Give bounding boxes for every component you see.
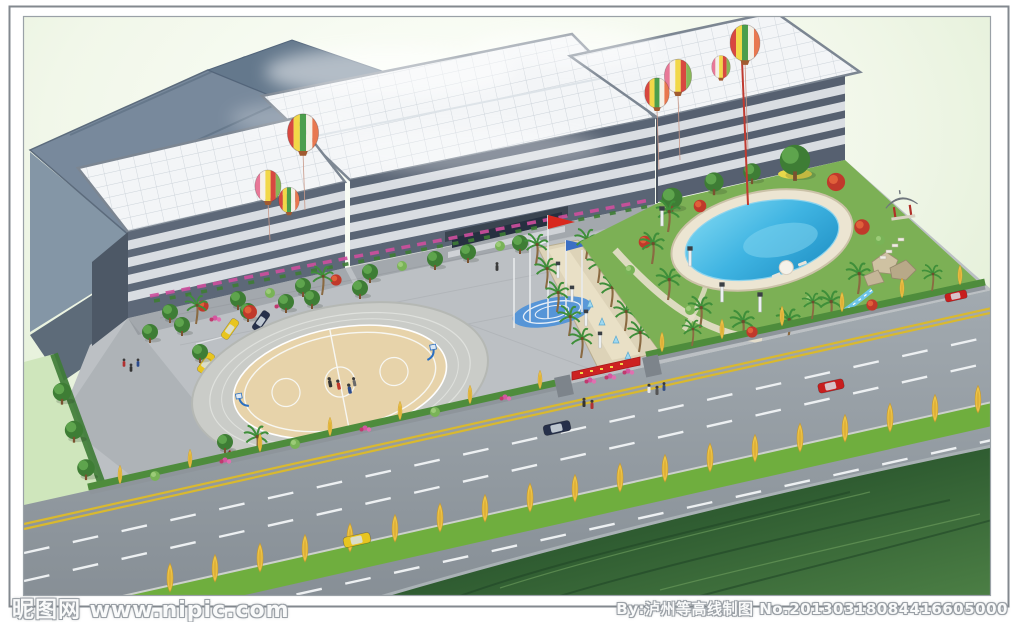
watermark-site: 昵图网 www.nipic.com [12,592,290,622]
scene-svg: " [0,0,1024,622]
rendering-page: " [0,0,1024,622]
watermark-credit: By:泸州等高线制图 No.20130318084416605000 [616,598,1008,619]
